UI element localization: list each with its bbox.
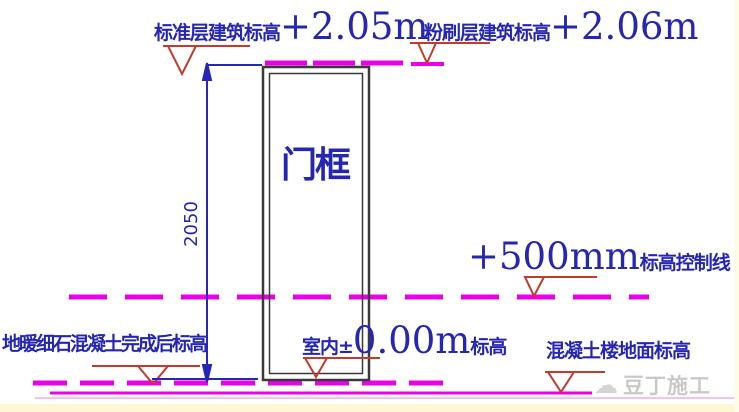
annotation-indoor-zero-elevation: 室内±0.00m标高 bbox=[302, 322, 506, 359]
elevation-symbol-500-control-line bbox=[524, 277, 597, 296]
elevation-value: +2.05m bbox=[280, 8, 428, 45]
annotation-suffix: 标高 bbox=[470, 338, 506, 357]
watermark-logo: ☁ 豆丁施工 bbox=[594, 370, 711, 400]
cloud-icon: ☁ bbox=[594, 373, 619, 397]
annotation-label: 标高控制线 bbox=[640, 254, 730, 273]
dimension-value: 2050 bbox=[182, 192, 202, 256]
annotation-floor-heating-elevation: 地暖细石混凝土完成后标高 bbox=[2, 335, 206, 354]
annotation-label: 地暖细石混凝土完成后标高 bbox=[2, 335, 206, 354]
construction-detail-diagram: 标准层建筑标高+2.05m 粉刷层建筑标高+2.06m +500mm标高控制线 … bbox=[0, 0, 739, 412]
elevation-value: 0.00m bbox=[353, 322, 470, 359]
annotation-prefix: 室内± bbox=[302, 338, 353, 357]
annotation-label: 混凝土楼地面标高 bbox=[546, 342, 690, 361]
bottom-edge-band bbox=[0, 404, 739, 412]
annotation-standard-floor-elevation: 标准层建筑标高+2.05m bbox=[154, 8, 429, 45]
door-frame-label: 门框 bbox=[281, 146, 371, 186]
annotation-concrete-floor-elevation: 混凝土楼地面标高 bbox=[546, 342, 690, 361]
annotation-label: 粉刷层建筑标高 bbox=[424, 24, 550, 43]
elevation-value: +500mm bbox=[468, 238, 640, 275]
annotation-500mm-control-line: +500mm标高控制线 bbox=[468, 238, 730, 275]
annotation-label: 标准层建筑标高 bbox=[154, 24, 280, 43]
watermark-text: 豆丁施工 bbox=[623, 370, 711, 400]
elevation-value: +2.06m bbox=[550, 8, 698, 45]
right-edge-band bbox=[734, 0, 739, 412]
annotation-plaster-layer-elevation: 粉刷层建筑标高+2.06m bbox=[424, 8, 699, 45]
